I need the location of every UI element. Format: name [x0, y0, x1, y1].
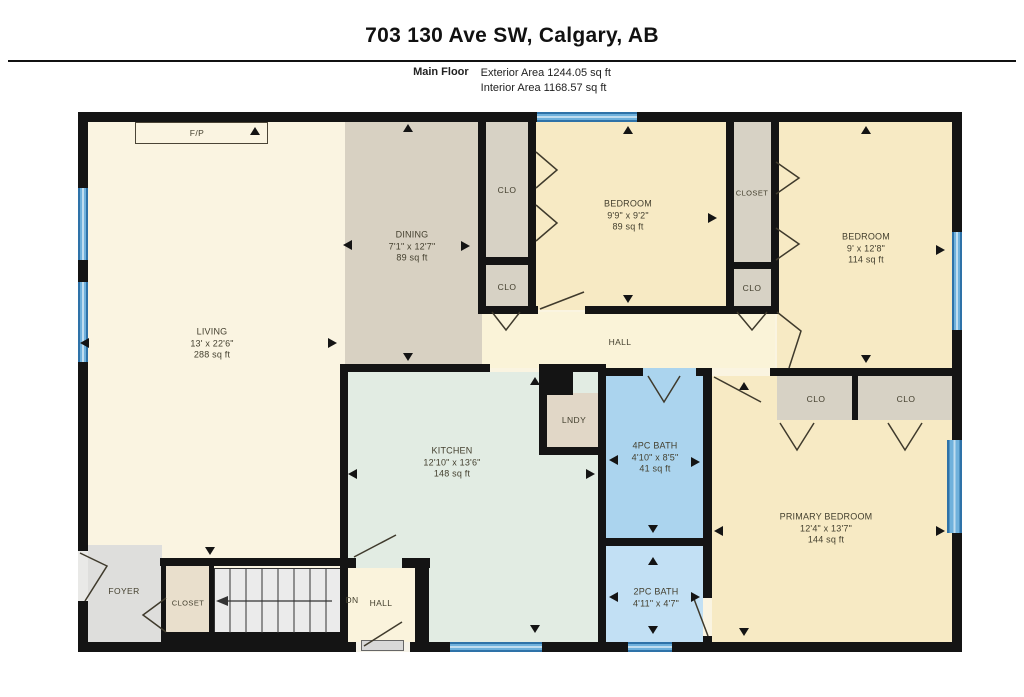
wall — [209, 566, 214, 642]
window — [78, 282, 88, 362]
wall — [606, 368, 643, 376]
floor-plan: LIVING13' x 22'6"288 sq ft DINING7'1" x … — [0, 0, 1024, 697]
label-dn: DN — [345, 595, 358, 605]
wall — [348, 558, 356, 568]
wall — [478, 257, 536, 265]
window — [450, 642, 542, 652]
wall — [598, 538, 712, 546]
room-label-bedroom-right: BEDROOM9' x 12'8"114 sq ft — [842, 231, 890, 266]
room-label-primary-bedroom: PRIMARY BEDROOM12'4" x 13'7"144 sq ft — [780, 511, 873, 546]
window — [628, 642, 672, 652]
room-label-kitchen: KITCHEN12'10" x 13'6"148 sq ft — [423, 445, 480, 480]
wall — [539, 447, 606, 455]
label-hall: HALL — [609, 337, 632, 347]
label-clo3: CLO — [743, 283, 762, 293]
wall — [161, 632, 342, 642]
side-door-leaf — [361, 640, 404, 651]
label-fireplace: F/P — [190, 128, 204, 138]
label-clo2: CLO — [498, 282, 517, 292]
wall — [730, 306, 779, 314]
stairs — [214, 568, 342, 634]
label-stair-hall: HALL — [370, 598, 393, 608]
label-foyer: FOYER — [108, 586, 139, 596]
wall — [598, 364, 606, 642]
room-label-living: LIVING13' x 22'6"288 sq ft — [190, 326, 233, 361]
wall — [703, 636, 712, 644]
room-label-bedroom-middle: BEDROOM9'9" x 9'2"89 sq ft — [604, 198, 652, 233]
room-label-bath-2pc: 2PC BATH4'11" x 4'7" — [633, 586, 679, 609]
window — [947, 440, 962, 533]
front-door-opening — [78, 551, 88, 601]
label-clo5: CLO — [897, 394, 916, 404]
wall — [771, 122, 779, 314]
label-clo4: CLO — [807, 394, 826, 404]
label-laundry: LNDY — [562, 415, 586, 425]
label-entry-closet: CLOSET — [172, 599, 204, 608]
room-label-dining: DINING7'1" x 12'7"89 sq ft — [389, 229, 436, 264]
wall — [478, 306, 538, 314]
wall — [415, 558, 429, 642]
label-clo1: CLO — [498, 185, 517, 195]
wall — [478, 122, 486, 312]
window — [78, 188, 88, 260]
window — [537, 112, 637, 122]
floor-plan-page: 703 130 Ave SW, Calgary, AB Main Floor E… — [0, 0, 1024, 697]
wall — [539, 364, 547, 455]
wall — [340, 364, 490, 372]
wall — [696, 368, 703, 376]
label-tall-closet: CLOSET — [736, 189, 768, 198]
wall — [852, 376, 858, 420]
wall — [703, 368, 712, 598]
wall — [528, 122, 536, 312]
wall — [726, 262, 779, 269]
wall — [585, 306, 730, 314]
room-label-bath-4pc: 4PC BATH4'10" x 8'5"41 sq ft — [632, 440, 679, 475]
wall — [161, 566, 166, 642]
wall — [726, 122, 734, 314]
wall — [160, 558, 350, 566]
window — [952, 232, 962, 330]
wall — [770, 368, 952, 376]
